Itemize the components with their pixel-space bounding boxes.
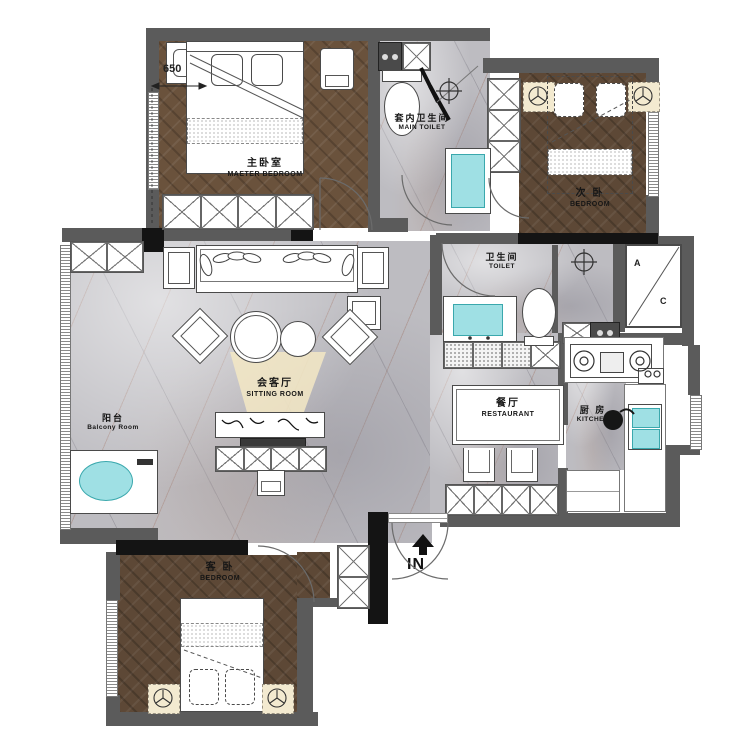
laundry-counter bbox=[70, 450, 158, 514]
closet-cell bbox=[338, 546, 369, 577]
wardrobe-cell bbox=[276, 195, 314, 229]
shower-tray bbox=[445, 148, 491, 214]
cabinet-cell bbox=[71, 242, 107, 272]
cabinet-cell bbox=[107, 242, 143, 272]
faucet bbox=[137, 459, 153, 465]
second-bedroom-wardrobe bbox=[487, 78, 521, 173]
ac-platform bbox=[625, 244, 682, 328]
wardrobe-cell bbox=[163, 195, 201, 229]
bed-runner bbox=[187, 118, 303, 144]
wardrobe-cell bbox=[488, 79, 520, 110]
wardrobe-cell bbox=[488, 141, 520, 172]
cabinet-cell bbox=[244, 447, 272, 471]
wall-segment bbox=[106, 712, 318, 726]
wall-segment bbox=[436, 233, 518, 244]
closet-cell bbox=[338, 577, 369, 608]
window bbox=[148, 92, 159, 190]
pillow bbox=[211, 54, 243, 86]
sofa bbox=[196, 245, 358, 293]
headboard bbox=[187, 42, 303, 52]
toilet-tank bbox=[382, 70, 422, 82]
hob-box bbox=[638, 368, 664, 384]
side-table-top bbox=[362, 252, 384, 284]
dining-chair bbox=[506, 448, 538, 482]
armchair-cushion bbox=[180, 316, 220, 356]
entry-door-leaf bbox=[388, 513, 448, 523]
window bbox=[106, 600, 118, 697]
balcony-cabinet bbox=[70, 241, 144, 273]
pillow bbox=[251, 54, 283, 86]
dimension-label: 650 bbox=[163, 63, 181, 75]
vanity-sink bbox=[453, 304, 503, 336]
ac-label-c: C bbox=[660, 296, 667, 306]
window bbox=[690, 395, 702, 450]
wardrobe-cell bbox=[238, 195, 276, 229]
wall-segment bbox=[62, 228, 142, 242]
laundry-sink bbox=[79, 461, 133, 501]
cabinet-cell bbox=[299, 447, 327, 471]
wall-segment bbox=[310, 598, 340, 607]
chair-seat bbox=[511, 450, 533, 473]
wall-segment bbox=[688, 345, 700, 395]
armchair-cushion bbox=[330, 317, 370, 357]
stove-center bbox=[600, 352, 624, 373]
stool-seat bbox=[261, 481, 281, 492]
closet-cell bbox=[530, 485, 558, 515]
side-table bbox=[357, 247, 389, 289]
pillow bbox=[596, 83, 626, 117]
bed-runner bbox=[548, 149, 632, 175]
window bbox=[648, 103, 659, 197]
wardrobe-cell bbox=[201, 195, 239, 229]
door-leaf-line bbox=[389, 518, 447, 519]
wall-segment-black bbox=[518, 233, 658, 244]
cabinet-cell bbox=[216, 447, 244, 471]
sideboard-cell bbox=[473, 342, 502, 368]
washer bbox=[378, 42, 402, 71]
wall-segment bbox=[613, 248, 625, 332]
toilet-cabinet bbox=[402, 42, 431, 71]
nightstand-lamp-box bbox=[148, 684, 180, 714]
wall-segment-black bbox=[142, 228, 164, 252]
pillow bbox=[554, 83, 584, 117]
closet-cell bbox=[474, 485, 502, 515]
side-table bbox=[163, 247, 195, 289]
pillow bbox=[225, 669, 255, 705]
vanity-counter bbox=[443, 296, 517, 342]
sink-basin bbox=[632, 429, 660, 449]
entry-closet bbox=[337, 545, 370, 609]
stool-seat bbox=[325, 75, 349, 87]
entrance-label: IN bbox=[407, 556, 425, 574]
kitchen-sink-unit bbox=[628, 404, 662, 450]
sink-basin bbox=[632, 408, 660, 428]
cabinet-cell bbox=[271, 447, 299, 471]
sofa-seat bbox=[200, 249, 354, 282]
guest-bed bbox=[180, 598, 264, 712]
coffee-table-large bbox=[230, 311, 282, 363]
coffee-table-small bbox=[280, 321, 316, 357]
restaurant-closet bbox=[445, 484, 559, 516]
entrance-arrow-stem bbox=[419, 547, 427, 555]
ac-label-a: A bbox=[634, 258, 641, 268]
wall-segment bbox=[430, 235, 442, 335]
cabinet-cell bbox=[403, 43, 430, 70]
sideboard-cell bbox=[444, 342, 473, 368]
toilet-bowl bbox=[522, 288, 556, 338]
stool bbox=[320, 48, 354, 90]
wall-segment bbox=[146, 28, 490, 41]
entrance-arrow bbox=[412, 534, 434, 547]
tv-feature-wall bbox=[215, 412, 325, 438]
master-bed bbox=[186, 41, 304, 174]
wall-segment-black bbox=[368, 512, 388, 624]
wall-segment-black bbox=[116, 540, 248, 555]
pillow bbox=[189, 669, 219, 705]
closet-cell bbox=[446, 485, 474, 515]
kitchen-counter-bottom bbox=[566, 470, 620, 512]
nightstand-lamp-box bbox=[262, 684, 294, 714]
bed-runner bbox=[181, 623, 263, 647]
stool bbox=[257, 470, 285, 496]
floor-guest-bedroom-ext bbox=[297, 552, 330, 598]
dining-chair bbox=[463, 448, 495, 482]
coffee-table-top bbox=[234, 315, 278, 359]
counter-divider bbox=[567, 491, 619, 492]
wall-segment bbox=[483, 58, 659, 73]
chair-seat bbox=[468, 450, 490, 473]
tv-cabinet bbox=[215, 446, 327, 472]
dining-table bbox=[452, 385, 564, 445]
second-bed bbox=[547, 76, 633, 194]
closet-cell bbox=[502, 485, 530, 515]
wall-segment bbox=[106, 552, 120, 600]
wall-segment bbox=[297, 598, 313, 712]
wall-segment bbox=[682, 236, 694, 346]
floor-plan: A C IN 650 bbox=[0, 0, 750, 754]
wardrobe-cell bbox=[488, 110, 520, 141]
side-table-top bbox=[168, 252, 190, 284]
dining-table-top bbox=[456, 389, 560, 441]
wall-segment bbox=[368, 218, 408, 232]
shower-tray-basin bbox=[451, 154, 485, 208]
master-wardrobe bbox=[162, 194, 314, 230]
